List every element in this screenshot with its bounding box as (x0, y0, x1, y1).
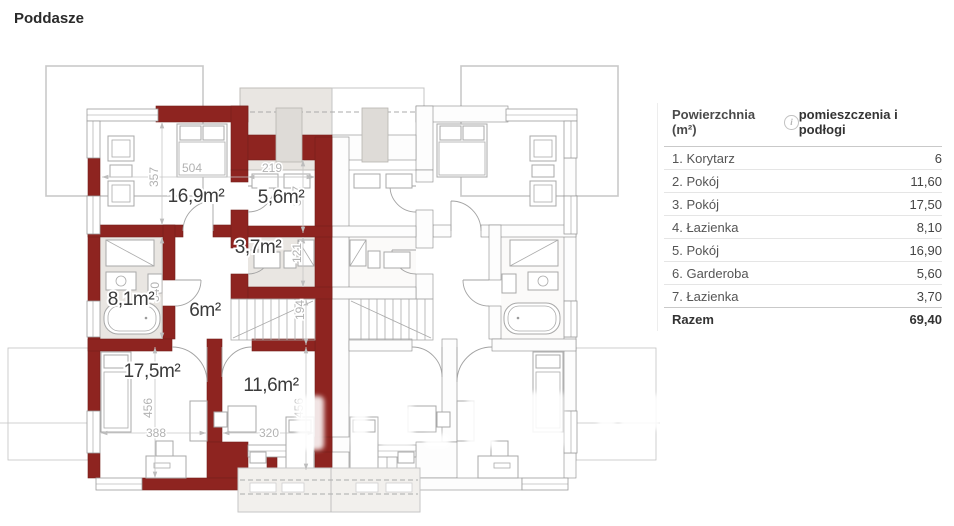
dim-456-left: 456 (141, 398, 155, 418)
room-area: 17,50 (909, 197, 942, 212)
page: Poddasze (0, 0, 954, 526)
dim-357-left: 357 (147, 167, 161, 187)
chimney (362, 108, 388, 162)
table-header-rooms: pomieszczenia i podłogi (799, 107, 942, 137)
room-label-garderoba-5-6: 5,6m² (258, 187, 305, 208)
total-area: 69,40 (909, 312, 942, 327)
info-icon[interactable]: i (784, 115, 798, 130)
table-header-area: Powierzchnia (m²) (672, 107, 778, 137)
dim-456-right: 456 (292, 398, 306, 418)
room-area: 8,10 (917, 220, 942, 235)
table-total-row: Razem 69,40 (664, 308, 942, 330)
room-name: 2. Pokój (672, 174, 719, 189)
room-label-korytarz-6: 6m² (189, 300, 221, 321)
table-row: 4. Łazienka 8,10 (664, 216, 942, 239)
room-label-pokoj-17-5: 17,5m² (124, 361, 181, 382)
room-name: 3. Pokój (672, 197, 719, 212)
table-row: 1. Korytarz 6 (664, 147, 942, 170)
dim-219: 219 (262, 161, 282, 175)
room-area: 3,70 (917, 289, 942, 304)
room-label-lazienka-8-1: 8,1m² (108, 289, 155, 310)
room-label-pokoj-16-9: 16,9m² (168, 186, 225, 207)
table-row: 3. Pokój 17,50 (664, 193, 942, 216)
floorplan: 504 357 219 357 121 340 194 456 388 456 … (0, 55, 660, 526)
room-label-lazienka-3-7: 3,7m² (235, 237, 282, 258)
room-area: 11,60 (910, 174, 942, 189)
room-name: 7. Łazienka (672, 289, 739, 304)
panel-divider (657, 103, 658, 331)
area-table: Powierzchnia (m²) i pomieszczenia i podł… (664, 103, 942, 330)
table-row: 2. Pokój 11,60 (664, 170, 942, 193)
room-name: 6. Garderoba (672, 266, 749, 281)
room-name: 4. Łazienka (672, 220, 739, 235)
dim-320: 320 (259, 426, 279, 440)
total-label: Razem (672, 312, 714, 327)
room-area: 5,60 (917, 266, 942, 281)
room-area: 16,90 (909, 243, 942, 258)
dim-504: 504 (182, 161, 202, 175)
table-row: 5. Pokój 16,90 (664, 239, 942, 262)
dim-121: 121 (290, 243, 304, 263)
table-row: 6. Garderoba 5,60 (664, 262, 942, 285)
room-area: 6 (935, 151, 942, 166)
porch (238, 468, 420, 512)
dim-388: 388 (146, 426, 166, 440)
room-label-pokoj-11-6: 11,6m² (243, 375, 298, 396)
table-header: Powierzchnia (m²) i pomieszczenia i podł… (664, 103, 942, 147)
dim-194: 194 (293, 300, 307, 320)
chimney (276, 108, 302, 162)
page-title: Poddasze (14, 10, 84, 27)
table-row: 7. Łazienka 3,70 (664, 285, 942, 308)
room-name: 5. Pokój (672, 243, 719, 258)
room-name: 1. Korytarz (672, 151, 735, 166)
